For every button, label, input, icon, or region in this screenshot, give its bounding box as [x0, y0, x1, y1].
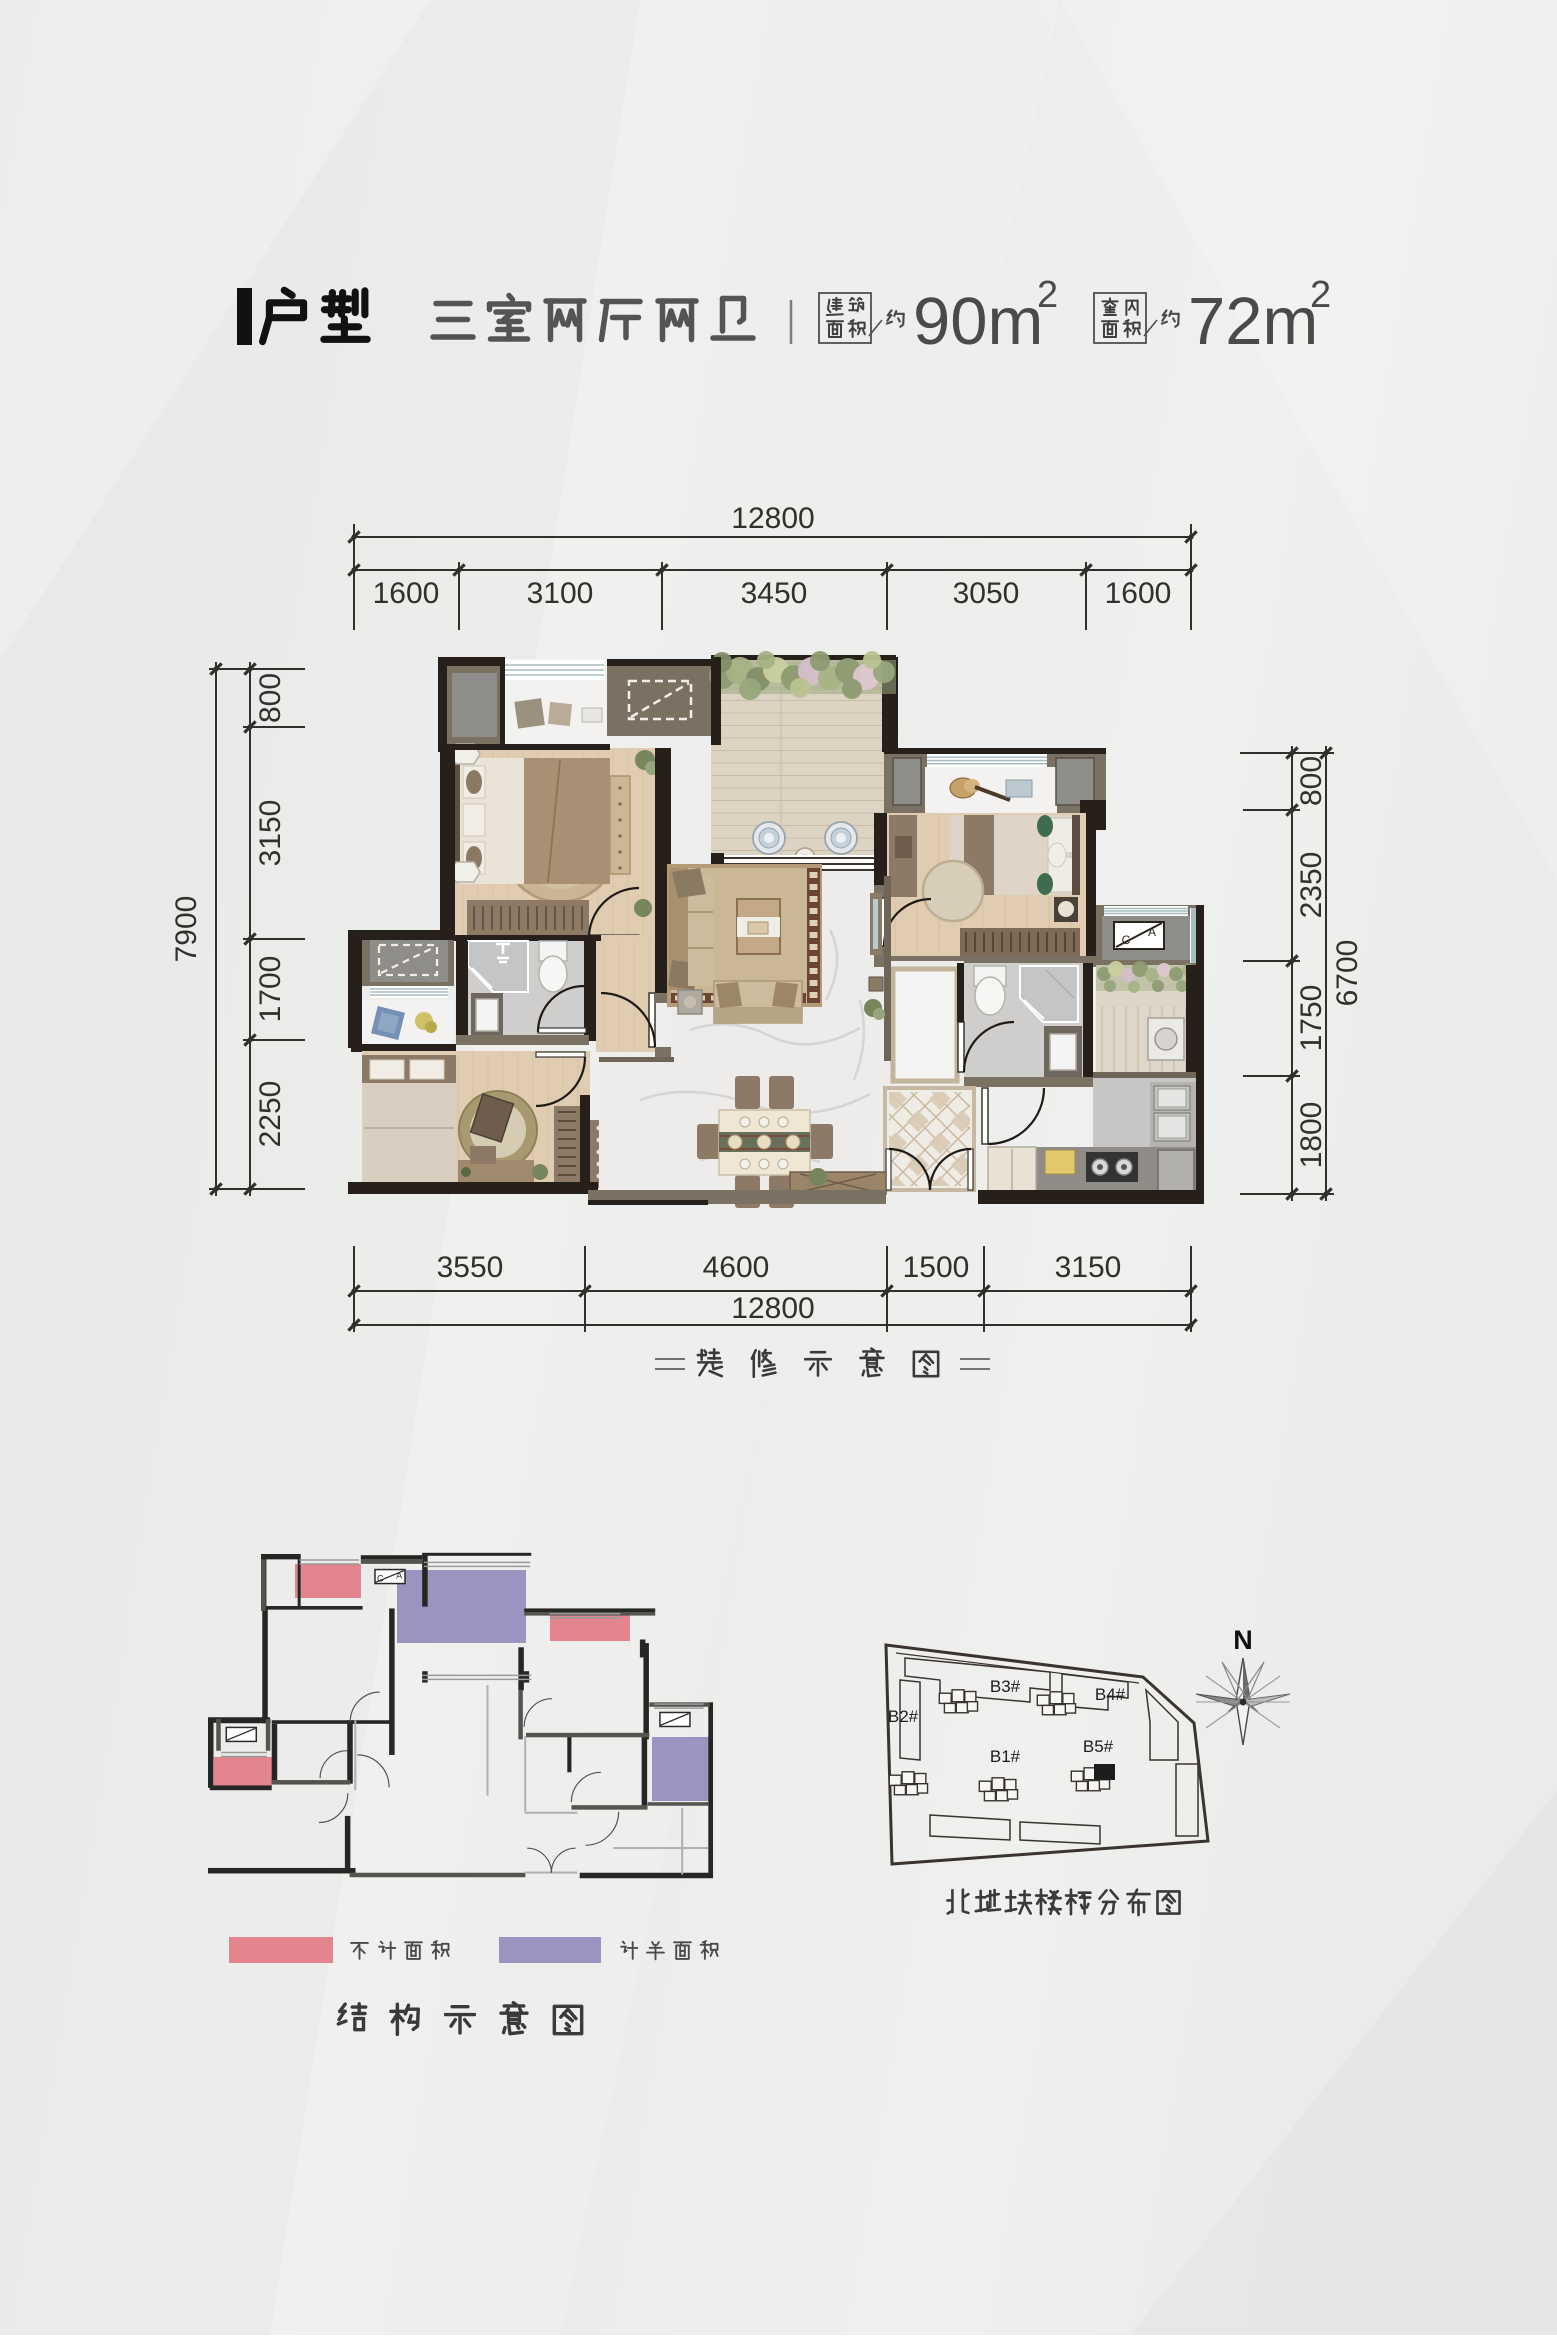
svg-text:6700: 6700 — [1331, 940, 1364, 1007]
svg-text:3150: 3150 — [254, 800, 287, 867]
svg-text:B5#: B5# — [1083, 1737, 1114, 1756]
svg-text:2: 2 — [1310, 274, 1331, 316]
svg-text:C: C — [377, 1574, 384, 1584]
svg-text:4600: 4600 — [703, 1251, 770, 1284]
svg-text:3050: 3050 — [953, 577, 1020, 610]
svg-text:B2#: B2# — [888, 1707, 919, 1726]
svg-text:3150: 3150 — [1055, 1251, 1122, 1284]
svg-text:90m: 90m — [913, 284, 1043, 359]
svg-text:1800: 1800 — [1295, 1102, 1328, 1169]
svg-text:1750: 1750 — [1295, 985, 1328, 1052]
svg-text:3450: 3450 — [741, 577, 808, 610]
svg-text:2250: 2250 — [254, 1081, 287, 1148]
svg-text:3100: 3100 — [527, 577, 594, 610]
svg-text:B3#: B3# — [990, 1677, 1021, 1696]
svg-text:2: 2 — [1037, 274, 1058, 316]
svg-text:C: C — [1122, 933, 1131, 947]
svg-text:7900: 7900 — [170, 896, 203, 963]
svg-text:1500: 1500 — [903, 1251, 970, 1284]
svg-text:3550: 3550 — [437, 1251, 504, 1284]
svg-text:72m: 72m — [1188, 284, 1318, 359]
svg-text:N: N — [1233, 1625, 1253, 1655]
svg-text:800: 800 — [1295, 756, 1328, 806]
svg-text:B4#: B4# — [1095, 1685, 1126, 1704]
svg-text:1600: 1600 — [373, 577, 440, 610]
svg-text:1600: 1600 — [1105, 577, 1172, 610]
svg-text:12800: 12800 — [731, 1292, 814, 1325]
svg-text:1700: 1700 — [254, 956, 287, 1023]
svg-text:B1#: B1# — [990, 1747, 1021, 1766]
svg-text:12800: 12800 — [731, 502, 814, 535]
svg-text:800: 800 — [254, 673, 287, 723]
svg-text:A: A — [1148, 925, 1156, 939]
svg-text:A: A — [396, 1571, 402, 1581]
svg-text:2350: 2350 — [1295, 852, 1328, 919]
